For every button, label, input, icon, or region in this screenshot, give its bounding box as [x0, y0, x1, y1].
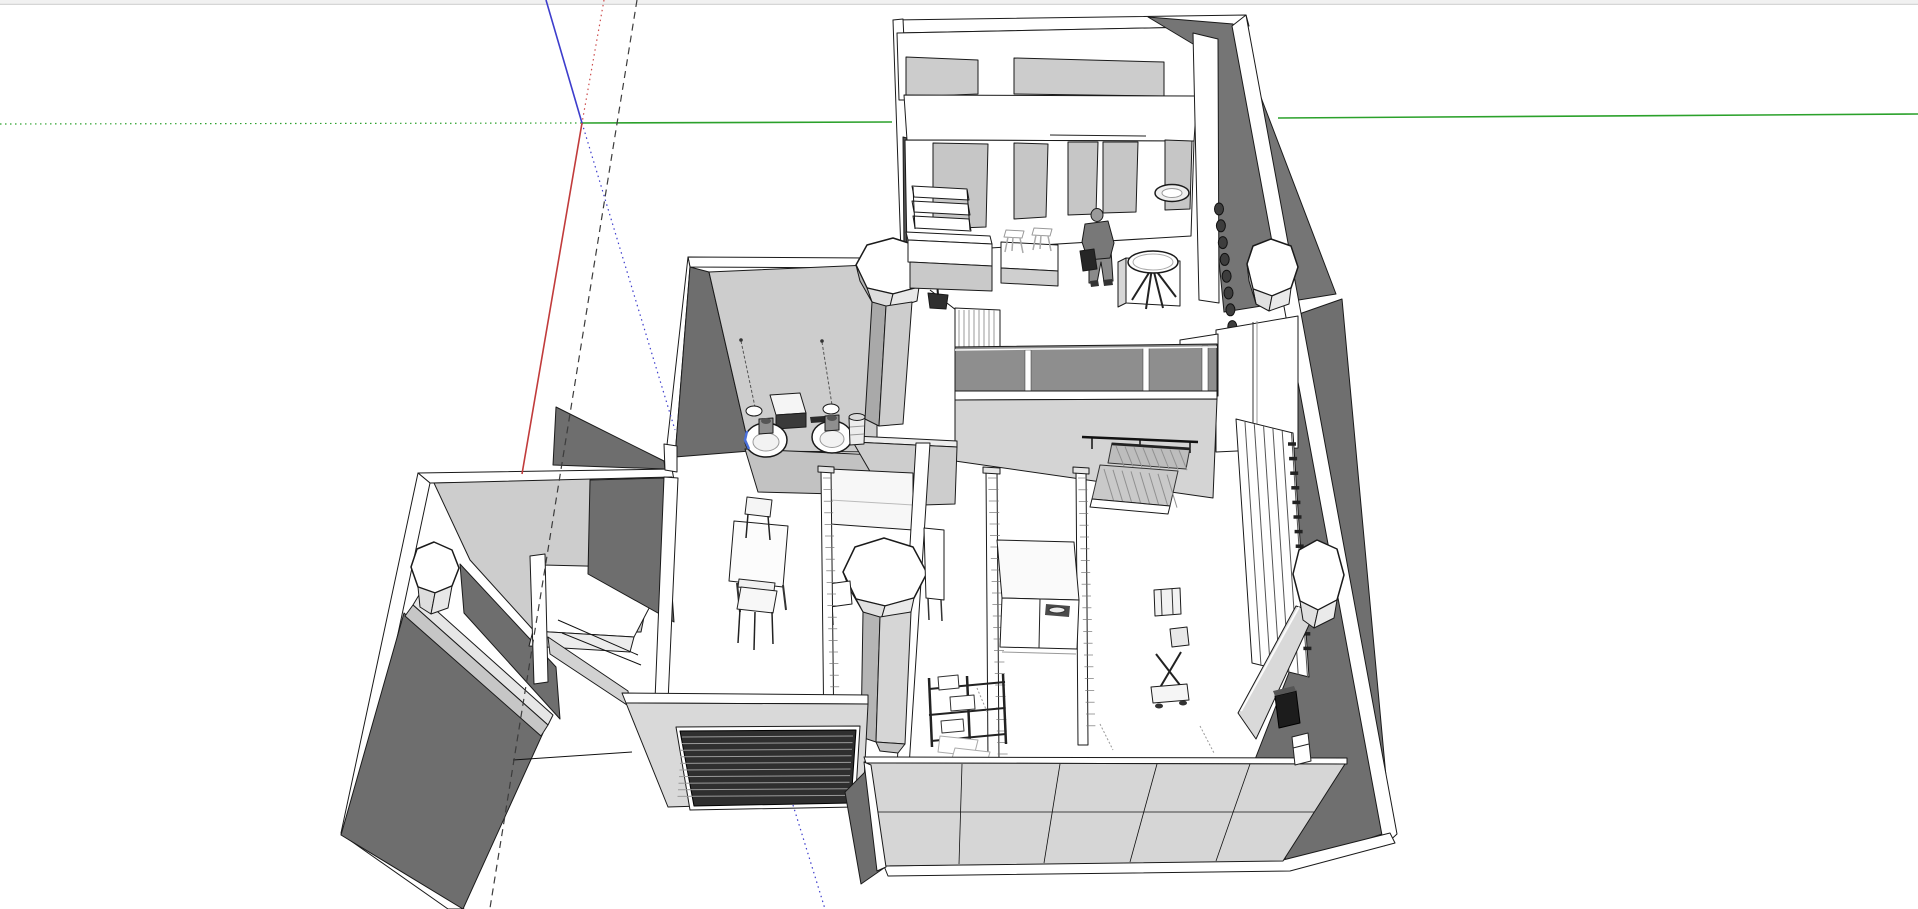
wall-clocks-7: [1226, 304, 1235, 316]
sf-beam: [904, 95, 1197, 141]
cafe-east-endcap: [664, 444, 677, 472]
grinder-top: [849, 414, 865, 421]
machine-2-knob: [827, 415, 837, 421]
stock-box-3: [941, 719, 964, 733]
lift-mid-box: [1170, 627, 1189, 647]
wall-clocks-2: [1216, 220, 1225, 232]
machine-2-ring: [820, 431, 844, 448]
pendant-shade-1: [746, 406, 762, 416]
axis-green-solid-left: [582, 122, 892, 123]
stock-box-1: [938, 675, 959, 690]
chair-1-seat: [745, 497, 772, 517]
stool-2-leg-3: [1040, 235, 1041, 249]
stool-1-seat: [1004, 230, 1024, 238]
octagon-col-3-top: [1247, 239, 1298, 296]
lift-wheel-1: [1155, 704, 1163, 709]
platform-base: [910, 262, 992, 291]
octagon-col-2-top: [843, 538, 927, 606]
octagon-col-5-top: [411, 542, 459, 593]
chair-2-leg-3: [754, 612, 755, 650]
pendant-shade-2: [823, 404, 839, 414]
wall-clocks-6: [1224, 287, 1233, 299]
lift-mast: [1154, 588, 1181, 616]
person-head: [1091, 209, 1103, 222]
shelf-3tier-slab-3: [913, 216, 971, 231]
glass-mullion-3: [1202, 346, 1208, 391]
stool-block-base: [1001, 268, 1058, 286]
lift-platform: [1151, 684, 1189, 703]
octagon-col-4-top: [1293, 540, 1344, 610]
side-table-right: [924, 528, 944, 600]
wall-clocks-4: [1220, 253, 1229, 265]
hall-counter-north: [830, 469, 913, 530]
ceiling-lamp-inner: [1162, 189, 1182, 198]
axis-blue-dotted-lower: [793, 805, 825, 909]
stool-2-seat: [1032, 228, 1052, 236]
axis-red-dotted: [582, 0, 604, 123]
gondola-strip-1-cap: [818, 466, 834, 473]
machine-1-knob: [761, 418, 771, 424]
chair-2-leg-2: [772, 612, 773, 644]
lift-wheel-2: [1179, 701, 1187, 706]
side-table-right-leg-1: [928, 598, 929, 620]
black-monitor-box: [1275, 691, 1300, 728]
cabinet-shadow: [1002, 652, 1076, 654]
roller-shutter-door: [680, 730, 856, 806]
door-pane-2: [1014, 143, 1048, 219]
modeler-viewport: [0, 0, 1918, 909]
axis-blue-dotted-upper: [582, 123, 675, 430]
axis-blue-solid: [546, 0, 582, 123]
stool-1-leg-3: [1012, 237, 1013, 251]
model-canvas[interactable]: [0, 0, 1918, 909]
octagon-col-2-shaft-front: [876, 612, 911, 744]
white-pillar: [1193, 33, 1219, 303]
divider-glass-band: [955, 344, 1217, 392]
mini-shelf: [1292, 733, 1311, 765]
wall-clocks-1: [1215, 203, 1224, 215]
wall-clocks-3: [1218, 237, 1227, 249]
plant-pot: [928, 293, 948, 309]
gondola-strip-3-cap: [1073, 467, 1089, 474]
person-foot-2: [1103, 279, 1113, 286]
chair-2-seat: [737, 587, 777, 613]
hidden-edge-dotted-2: [1100, 724, 1113, 750]
person-bag: [1080, 249, 1097, 271]
glass-mullion-1: [1025, 350, 1031, 391]
counter-box-top: [770, 393, 806, 415]
south-wall-panels: [868, 763, 1345, 866]
glass-mullion-2: [1143, 348, 1149, 391]
clerestory-pane-1: [906, 57, 978, 97]
cord-anchor-1: [739, 338, 743, 342]
wall-clocks-5: [1222, 270, 1231, 282]
pedestal-plinth-side: [1118, 258, 1126, 307]
grinder-body: [849, 417, 865, 445]
slat-blind: [955, 308, 1000, 349]
cafe-table-leg-2: [783, 585, 786, 610]
chair-2-leg-1: [738, 609, 740, 643]
ui-top-strip: [0, 0, 1918, 4]
drawer-handle: [1049, 607, 1065, 613]
cord-anchor-2: [820, 339, 824, 343]
gondola-strip-2-cap: [983, 467, 1000, 474]
door-pane-1: [933, 143, 988, 229]
counter-box-front: [776, 413, 806, 429]
hidden-edge-dotted-3: [1200, 726, 1214, 753]
garage-wall-band: [622, 693, 868, 704]
cabinet-top: [997, 540, 1079, 600]
stock-box-2: [950, 695, 975, 711]
axis-green-dotted: [0, 123, 581, 124]
axis-green-solid-right: [1278, 114, 1918, 118]
machine-1-ring: [753, 433, 779, 451]
door-glass-1: [1068, 142, 1098, 215]
cafe-table-top: [729, 521, 788, 587]
door-glass-2: [1103, 142, 1138, 213]
gondola-strip-2: [986, 470, 999, 763]
side-table-right-leg-2: [941, 600, 942, 621]
clerestory-pane-2: [1014, 58, 1164, 96]
person-foot-1: [1090, 280, 1099, 287]
